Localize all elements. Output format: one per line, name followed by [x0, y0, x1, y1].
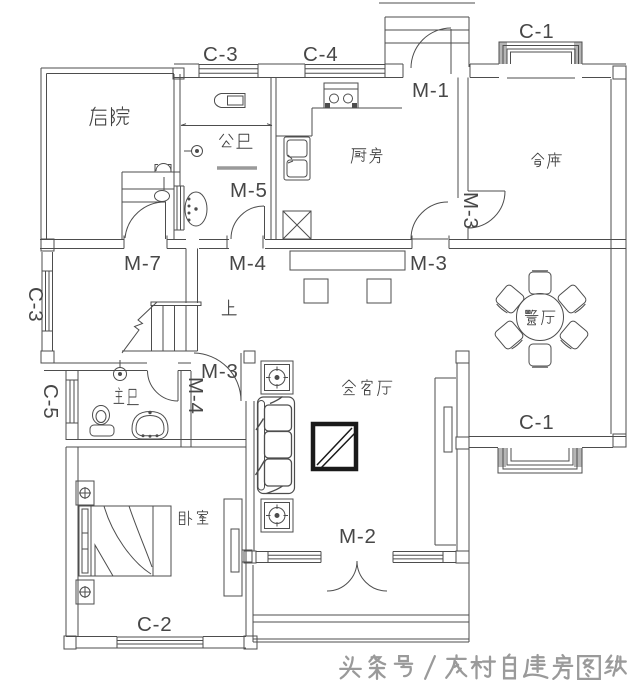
svg-text:C-5: C-5 — [39, 384, 62, 419]
svg-text:C-4: C-4 — [303, 43, 338, 66]
svg-text:M-4: M-4 — [229, 252, 267, 275]
svg-text:C-1: C-1 — [519, 411, 554, 434]
svg-text:M-5: M-5 — [230, 179, 268, 202]
svg-text:M-1: M-1 — [412, 79, 450, 102]
svg-text:C-2: C-2 — [137, 613, 172, 636]
svg-text:C-3: C-3 — [24, 287, 47, 322]
svg-text:M-3: M-3 — [410, 252, 448, 275]
svg-text:M-3: M-3 — [459, 192, 482, 230]
svg-text:C-1: C-1 — [519, 20, 554, 43]
svg-text:C-3: C-3 — [203, 43, 238, 66]
svg-text:M-7: M-7 — [124, 252, 162, 275]
svg-text:M-2: M-2 — [339, 525, 377, 548]
svg-text:M-3: M-3 — [201, 360, 239, 383]
